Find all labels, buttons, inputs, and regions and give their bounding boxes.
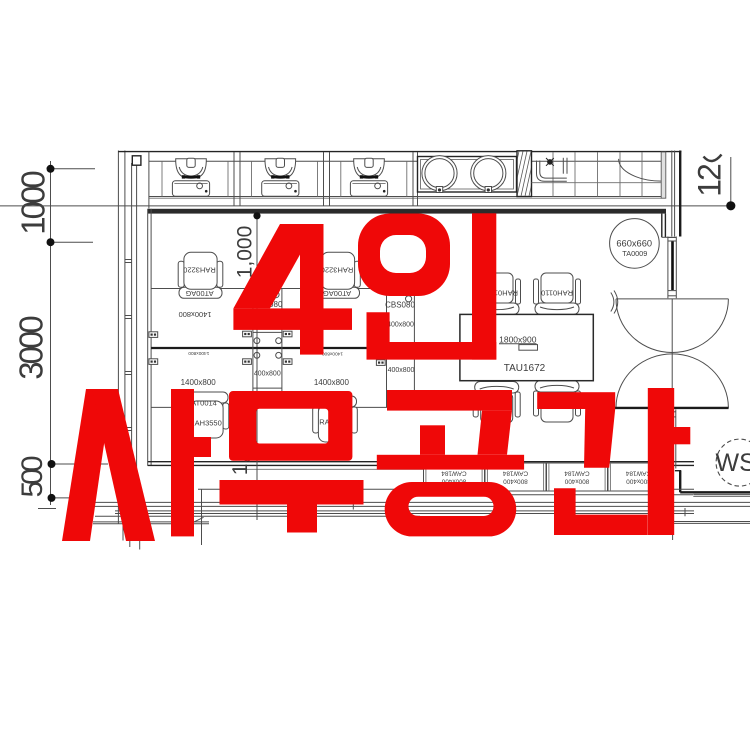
svg-text:1,000: 1,000 bbox=[234, 226, 257, 279]
svg-text:1400x800: 1400x800 bbox=[314, 378, 350, 387]
svg-text:1800x900: 1800x900 bbox=[499, 334, 537, 344]
svg-text:400x800: 400x800 bbox=[388, 367, 415, 374]
svg-text:400x800: 400x800 bbox=[387, 322, 414, 329]
svg-text:660x660: 660x660 bbox=[616, 238, 652, 248]
svg-text:1000: 1000 bbox=[15, 171, 52, 235]
svg-text:1400x800: 1400x800 bbox=[179, 310, 212, 319]
svg-text:1400x800: 1400x800 bbox=[188, 350, 209, 356]
svg-text:RAH3550: RAH3550 bbox=[189, 418, 222, 427]
svg-text:WS: WS bbox=[716, 449, 750, 477]
svg-text:RAH3220: RAH3220 bbox=[183, 266, 216, 275]
svg-text:RAH0110: RAH0110 bbox=[541, 289, 573, 298]
svg-text:AT0014: AT0014 bbox=[191, 398, 217, 407]
svg-text:TAU1672: TAU1672 bbox=[504, 363, 546, 374]
svg-text:12: 12 bbox=[691, 164, 727, 197]
svg-text:RAH3220: RAH3220 bbox=[321, 266, 354, 275]
svg-text:500: 500 bbox=[16, 456, 49, 497]
svg-text:CBS080: CBS080 bbox=[385, 300, 415, 309]
svg-text:1400x800: 1400x800 bbox=[322, 351, 343, 357]
svg-text:400x800: 400x800 bbox=[254, 371, 281, 378]
svg-text:AT00AG: AT00AG bbox=[323, 289, 351, 298]
svg-text:AT00AG: AT00AG bbox=[185, 289, 213, 298]
svg-text:3000: 3000 bbox=[13, 316, 50, 380]
svg-text:TA0009: TA0009 bbox=[622, 249, 647, 258]
svg-text:1400x800: 1400x800 bbox=[181, 378, 217, 387]
